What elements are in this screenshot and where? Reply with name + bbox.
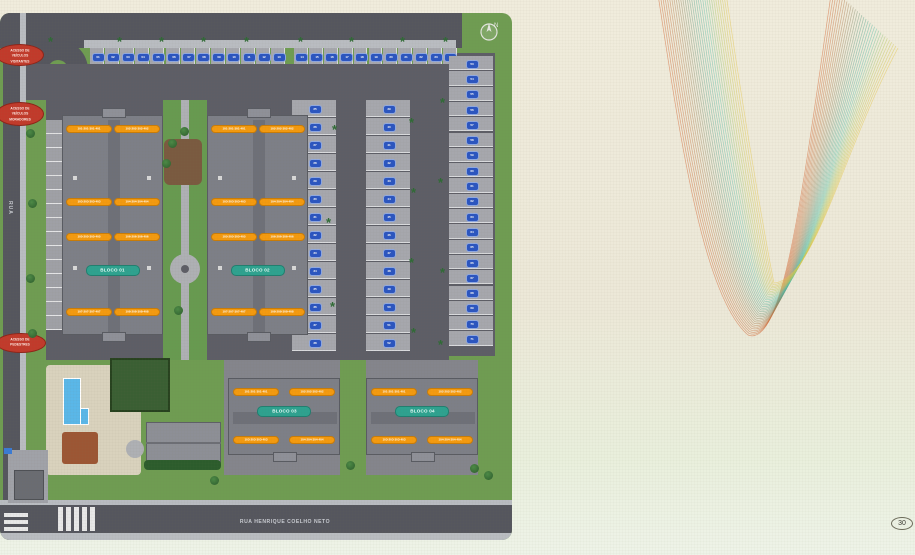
recycle-bins (4, 448, 12, 454)
label-text: 09 (213, 55, 224, 59)
parallel-parking-strip (46, 120, 62, 330)
parking-space-badge: 58 (466, 136, 479, 145)
tree-icon (162, 159, 171, 168)
parking-stall: 06 (166, 48, 180, 64)
parking-space-badge: 68 (466, 289, 479, 298)
parking-stall: 58 (449, 133, 493, 147)
parking-stall: 66 (449, 255, 493, 269)
label-text: 08 (198, 55, 209, 59)
label-text: 103·203·303·403 (211, 201, 257, 204)
label-text: 101·201·301·401 (233, 391, 279, 394)
label-text: 48 (384, 270, 395, 274)
label-text: 34 (310, 270, 321, 274)
parking-space-badge: 63 (466, 213, 479, 222)
building-spine (253, 120, 265, 332)
block-name-pill: BLOCO 04 (395, 406, 449, 417)
label-text: 66 (467, 261, 478, 265)
palm-tree-icon: * (409, 259, 414, 267)
label-text: 13 (274, 55, 285, 59)
crosswalk-stripe (58, 507, 63, 531)
parking-stall: 52 (366, 334, 410, 351)
parking-space-badge: 43 (383, 177, 396, 186)
roof-vent (292, 176, 296, 180)
parking-space-badge: 14 (295, 53, 308, 62)
guilloche-wave-graphic (600, 0, 915, 400)
parking-stall: 59 (449, 148, 493, 162)
label-text: 16 (326, 55, 337, 59)
parking-space-badge: 13 (273, 53, 286, 62)
label-text: 06 (168, 55, 179, 59)
label-text: 36 (310, 306, 321, 310)
parking-stall: 45 (366, 208, 410, 225)
parking-stall: 63 (449, 209, 493, 223)
label-text: 38 (310, 342, 321, 346)
street-label-bottom: RUA HENRIQUE COELHO NETO (158, 519, 413, 524)
parking-space-badge: 26 (309, 123, 322, 132)
building-entry (102, 108, 126, 118)
crosswalk-stripe (4, 513, 28, 517)
label-text: 54 (467, 78, 478, 82)
label-text: 102·202·302·402 (427, 391, 473, 394)
tree-icon (484, 471, 493, 480)
parking-space-badge: 38 (309, 339, 322, 348)
parking-space-badge: 34 (309, 267, 322, 276)
label-text: 18 (356, 55, 367, 59)
unit-numbers-label: 104·204·304·404 (289, 436, 335, 444)
unit-numbers-label: 105·205·305·405 (211, 233, 257, 241)
parking-space-badge: 66 (466, 259, 479, 268)
parking-space-badge: 62 (466, 197, 479, 206)
parking-space-badge: 27 (309, 141, 322, 150)
parking-stall: 14 (294, 48, 308, 64)
unit-numbers-label: 106·206·306·406 (259, 233, 305, 241)
parking-space-badge: 59 (466, 151, 479, 160)
label-text: 101·201·301·401 (66, 128, 112, 131)
parking-space-badge: 32 (309, 231, 322, 240)
roof-vent (73, 176, 77, 180)
unit-numbers-label: 108·208·308·408 (259, 308, 305, 316)
label-text: ACESSO DE (0, 338, 44, 341)
label-text: 11 (244, 55, 255, 59)
label-text: 102·202·302·402 (259, 128, 305, 131)
label-text: 62 (467, 200, 478, 204)
parking-space-badge: 36 (309, 303, 322, 312)
parking-stall: 55 (449, 87, 493, 101)
label-text: 47 (384, 252, 395, 256)
label-text: 30 (310, 198, 321, 202)
palm-tree-icon: * (117, 38, 122, 46)
label-text: 12 (259, 55, 270, 59)
palm-tree-icon: * (411, 189, 416, 197)
building-spine (108, 120, 120, 332)
label-text: 59 (467, 154, 478, 158)
label-text: 05 (153, 55, 164, 59)
swimming-pool-foot (80, 408, 89, 425)
guardhouse (14, 470, 44, 500)
parking-space-badge: 20 (385, 53, 398, 62)
parking-stall: 51 (366, 316, 410, 333)
unit-numbers-label: 104·204·304·404 (427, 436, 473, 444)
tree-icon (180, 127, 189, 136)
label-text: 70 (467, 322, 478, 326)
label-text: 103·203·303·403 (66, 201, 112, 204)
parking-stall: 04 (135, 48, 149, 64)
unit-numbers-label: 103·203·303·403 (233, 436, 279, 444)
block-name-pill: BLOCO 01 (86, 265, 140, 276)
parking-stall: 15 (309, 48, 323, 64)
label-text: 106·206·306·406 (259, 236, 305, 239)
parking-space-badge: 42 (383, 159, 396, 168)
label-text: 46 (384, 234, 395, 238)
parking-space-badge: 57 (466, 121, 479, 130)
palm-tree-icon: * (400, 38, 405, 46)
parking-stall: 54 (449, 71, 493, 85)
parking-space-badge: 06 (167, 53, 180, 62)
swimming-pool (63, 378, 81, 425)
parking-space-badge: 60 (466, 167, 479, 176)
label-text: 61 (467, 185, 478, 189)
parking-space-badge: 01 (92, 53, 105, 62)
tree-icon (210, 476, 219, 485)
parking-space-badge: 09 (212, 53, 225, 62)
parking-stall: 23 (428, 48, 442, 64)
parking-space-badge: 17 (340, 53, 353, 62)
unit-numbers-label: 102·202·302·402 (289, 388, 335, 396)
parking-stall: 64 (449, 224, 493, 238)
parking-stall: 67 (449, 270, 493, 284)
tree-icon (26, 274, 35, 283)
unit-numbers-label: 106·206·306·406 (114, 233, 160, 241)
building-entry (273, 452, 297, 462)
parking-space-badge: 10 (227, 53, 240, 62)
label-text: 20 (386, 55, 397, 59)
unit-numbers-label: 104·204·304·404 (259, 198, 305, 206)
roof-vent (292, 266, 296, 270)
label-text: 33 (310, 252, 321, 256)
label-text: 53 (467, 62, 478, 66)
label-text: 23 (431, 55, 442, 59)
parking-stall: 05 (150, 48, 164, 64)
label-text: 69 (467, 307, 478, 311)
parking-space-badge: 18 (355, 53, 368, 62)
parking-space-badge: 29 (309, 177, 322, 186)
palm-tree-icon: * (440, 269, 445, 277)
label-text: 55 (467, 93, 478, 97)
parking-stall: 22 (413, 48, 427, 64)
label-text: 103·203·303·403 (233, 439, 279, 442)
unit-numbers-label: 102·202·302·402 (259, 125, 305, 133)
parking-space-badge: 11 (243, 53, 256, 62)
label-text: 44 (384, 198, 395, 202)
unit-numbers-label: 103·203·303·403 (211, 198, 257, 206)
label-text: 107·207·307·407 (211, 311, 257, 314)
unit-numbers-label: 103·203·303·403 (66, 198, 112, 206)
label-text: 104·204·304·404 (427, 439, 473, 442)
label-text: 52 (384, 342, 395, 346)
lawn-between-blocks (340, 360, 366, 475)
parking-stall: 62 (449, 194, 493, 208)
compass-icon: N (476, 19, 502, 45)
unit-numbers-label: 102·202·302·402 (114, 125, 160, 133)
label-text: 67 (467, 277, 478, 281)
parking-space-badge: 33 (309, 249, 322, 258)
parking-space-badge: 08 (197, 53, 210, 62)
label-text: 17 (341, 55, 352, 59)
parking-stall: 41 (366, 136, 410, 153)
site-plan: RUA HENRIQUE COELHO NETO RUA N 010203040… (0, 13, 512, 540)
svg-text:N: N (494, 23, 498, 29)
label-text: 40 (384, 126, 395, 130)
parking-space-badge: 21 (400, 53, 413, 62)
parking-stall: 39 (366, 100, 410, 117)
building (62, 115, 163, 335)
label-text: 04 (138, 55, 149, 59)
page-number-badge: 30 (891, 517, 913, 530)
garden-plaza-center (181, 265, 189, 273)
label-text: BLOCO 03 (257, 408, 311, 414)
access-label: ACESSO DEVEÍCULOSVISITANTES (0, 44, 44, 66)
parking-stall: 50 (366, 298, 410, 315)
parking-stall: 53 (449, 56, 493, 70)
parking-space-badge: 47 (383, 249, 396, 258)
parking-space-badge: 51 (383, 321, 396, 330)
parking-space-badge: 52 (383, 339, 396, 348)
label-text: 56 (467, 108, 478, 112)
garden-path-lower (181, 281, 189, 360)
palm-tree-icon: * (159, 38, 164, 46)
tree-icon (470, 464, 479, 473)
label-text: 32 (310, 234, 321, 238)
parking-stall: 42 (366, 154, 410, 171)
parking-space-badge: 48 (383, 267, 396, 276)
label-text: 35 (310, 288, 321, 292)
unit-numbers-label: 107·207·307·407 (211, 308, 257, 316)
palm-tree-icon: * (326, 219, 331, 227)
presentation-slide: RUA HENRIQUE COELHO NETO RUA N 010203040… (0, 0, 915, 555)
playground-bark (62, 432, 98, 464)
parking-space-badge: 67 (466, 274, 479, 283)
label-text: 63 (467, 215, 478, 219)
roof-vent (73, 266, 77, 270)
parking-space-badge: 44 (383, 195, 396, 204)
parking-stall: 48 (366, 262, 410, 279)
parking-space-badge: 50 (383, 303, 396, 312)
label-text: BLOCO 02 (231, 267, 285, 273)
label-text: 101·201·301·401 (211, 128, 257, 131)
tree-icon (168, 139, 177, 148)
label-text: 15 (311, 55, 322, 59)
label-text: ACESSO DE (0, 49, 44, 52)
street-label-left: RUA (4, 201, 13, 281)
parking-space-badge: 70 (466, 320, 479, 329)
parking-space-badge: 16 (325, 53, 338, 62)
parking-stall: 40 (366, 118, 410, 135)
crosswalk-stripe (74, 507, 79, 531)
label-text: 104·204·304·404 (259, 201, 305, 204)
palm-tree-icon: * (443, 38, 448, 46)
roof-vent (218, 266, 222, 270)
round-pad (126, 440, 144, 458)
tree-icon (28, 199, 37, 208)
palm-tree-icon: * (244, 38, 249, 46)
parking-stall: 71 (449, 331, 493, 345)
label-text: 108·208·308·408 (259, 311, 305, 314)
label-text: 41 (384, 144, 395, 148)
label-text: 22 (416, 55, 427, 59)
parking-stall: 11 (241, 48, 255, 64)
label-text: 58 (467, 139, 478, 143)
label-text: 68 (467, 292, 478, 296)
tree-icon (26, 129, 35, 138)
lawn-left-strip (26, 100, 46, 360)
parking-space-badge: 61 (466, 182, 479, 191)
label-text: 60 (467, 169, 478, 173)
label-text: 51 (384, 324, 395, 328)
parking-space-badge: 31 (309, 213, 322, 222)
parking-stall: 65 (449, 240, 493, 254)
wave-line (668, 0, 843, 327)
label-text: BLOCO 01 (86, 267, 140, 273)
unit-numbers-label: 101·201·301·401 (371, 388, 417, 396)
label-text: 108·208·308·408 (114, 311, 160, 314)
palm-tree-icon: * (332, 126, 337, 134)
parking-stall: 19 (369, 48, 383, 64)
label-text: 106·206·306·406 (114, 236, 160, 239)
label-text: BLOCO 04 (395, 408, 449, 414)
parking-stall: 47 (366, 244, 410, 261)
label-text: VEÍCULOS (0, 113, 44, 116)
label-text: 71 (467, 338, 478, 342)
parking-space-badge: 22 (415, 53, 428, 62)
block-name-pill: BLOCO 02 (231, 265, 285, 276)
building-entry (411, 452, 435, 462)
parking-stall: 18 (354, 48, 368, 64)
label-text: 28 (310, 162, 321, 166)
parking-space-badge: 07 (182, 53, 195, 62)
label-text: 104·204·304·404 (114, 201, 160, 204)
unit-numbers-label: 103·203·303·403 (371, 436, 417, 444)
parking-stall: 13 (271, 48, 285, 64)
parking-stall: 68 (449, 286, 493, 300)
parking-space-badge: 05 (152, 53, 165, 62)
label-text: 14 (296, 55, 307, 59)
label-text: 105·205·305·405 (66, 236, 112, 239)
label-text: 39 (384, 108, 395, 112)
unit-numbers-label: 101·201·301·401 (66, 125, 112, 133)
parking-stall: 21 (398, 48, 412, 64)
label-text: 29 (310, 180, 321, 184)
parking-space-badge: 69 (466, 304, 479, 313)
parking-stall: 69 (449, 301, 493, 315)
label-text: 21 (401, 55, 412, 59)
parking-space-badge: 35 (309, 285, 322, 294)
street-name-left: RUA (7, 201, 13, 215)
label-text: 25 (310, 108, 321, 112)
lawn-east-blocks (478, 360, 492, 475)
unit-numbers-label: 101·201·301·401 (211, 125, 257, 133)
label-text: 105·205·305·405 (211, 236, 257, 239)
parking-stall: 02 (105, 48, 119, 64)
parking-space-badge: 56 (466, 106, 479, 115)
parking-stall: 10 (226, 48, 240, 64)
palm-tree-icon: * (201, 38, 206, 46)
parking-space-badge: 30 (309, 195, 322, 204)
parking-space-badge: 40 (383, 123, 396, 132)
parking-space-badge: 12 (258, 53, 271, 62)
label-text: 01 (93, 55, 104, 59)
label-text: 103·203·303·403 (371, 439, 417, 442)
crosswalk-stripe (82, 507, 87, 531)
unit-numbers-label: 104·204·304·404 (114, 198, 160, 206)
label-text: 104·204·304·404 (289, 439, 335, 442)
palm-tree-icon: * (48, 38, 53, 46)
palm-tree-icon: * (349, 38, 354, 46)
label-text: 49 (384, 288, 395, 292)
label-text: 57 (467, 124, 478, 128)
parking-space-badge: 71 (466, 335, 479, 344)
label-text: 102·202·302·402 (114, 128, 160, 131)
palm-tree-icon: * (411, 329, 416, 337)
parking-stall: 08 (196, 48, 210, 64)
parking-space-badge: 04 (137, 53, 150, 62)
parking-stall: 12 (256, 48, 270, 64)
label-text: PEDESTRES (0, 344, 44, 347)
label-text: 43 (384, 180, 395, 184)
parking-stall: 44 (366, 190, 410, 207)
parking-space-badge: 41 (383, 141, 396, 150)
parking-space-badge: 37 (309, 321, 322, 330)
parking-space-badge: 25 (309, 105, 322, 114)
sidewalk-bottom-dn (0, 533, 512, 540)
crosswalk-stripe (66, 507, 71, 531)
crosswalk-stripe (4, 527, 28, 531)
label-text: 03 (123, 55, 134, 59)
roof-vent (147, 266, 151, 270)
parking-stall: 70 (449, 316, 493, 330)
parking-stall: 09 (211, 48, 225, 64)
parking-stall: 60 (449, 163, 493, 177)
label-text: VISITANTES (0, 60, 44, 63)
label-text: 101·201·301·401 (371, 391, 417, 394)
parking-stall: 57 (449, 117, 493, 131)
hedge-row (144, 460, 221, 470)
label-text: VEÍCULOS (0, 55, 44, 58)
label-text: 27 (310, 144, 321, 148)
tree-icon (346, 461, 355, 470)
building-entry (247, 108, 271, 118)
parking-space-badge: 55 (466, 90, 479, 99)
label-text: 107·207·307·407 (66, 311, 112, 314)
label-text: 42 (384, 162, 395, 166)
parking-stall: 38 (292, 334, 336, 351)
parking-stall: 20 (383, 48, 397, 64)
unit-numbers-label: 108·208·308·408 (114, 308, 160, 316)
label-text: 45 (384, 216, 395, 220)
label-text: 102·202·302·402 (289, 391, 335, 394)
label-text: MORADORES (0, 118, 44, 121)
building-entry (247, 332, 271, 342)
parking-space-badge: 45 (383, 213, 396, 222)
unit-numbers-label: 107·207·307·407 (66, 308, 112, 316)
palm-tree-icon: * (298, 38, 303, 46)
clubhouse-ridge (146, 442, 221, 444)
parking-space-badge: 54 (466, 75, 479, 84)
palm-tree-icon: * (438, 341, 443, 349)
label-text: 19 (371, 55, 382, 59)
parking-stall: 01 (90, 48, 104, 64)
roof-vent (147, 176, 151, 180)
label-text: 64 (467, 231, 478, 235)
